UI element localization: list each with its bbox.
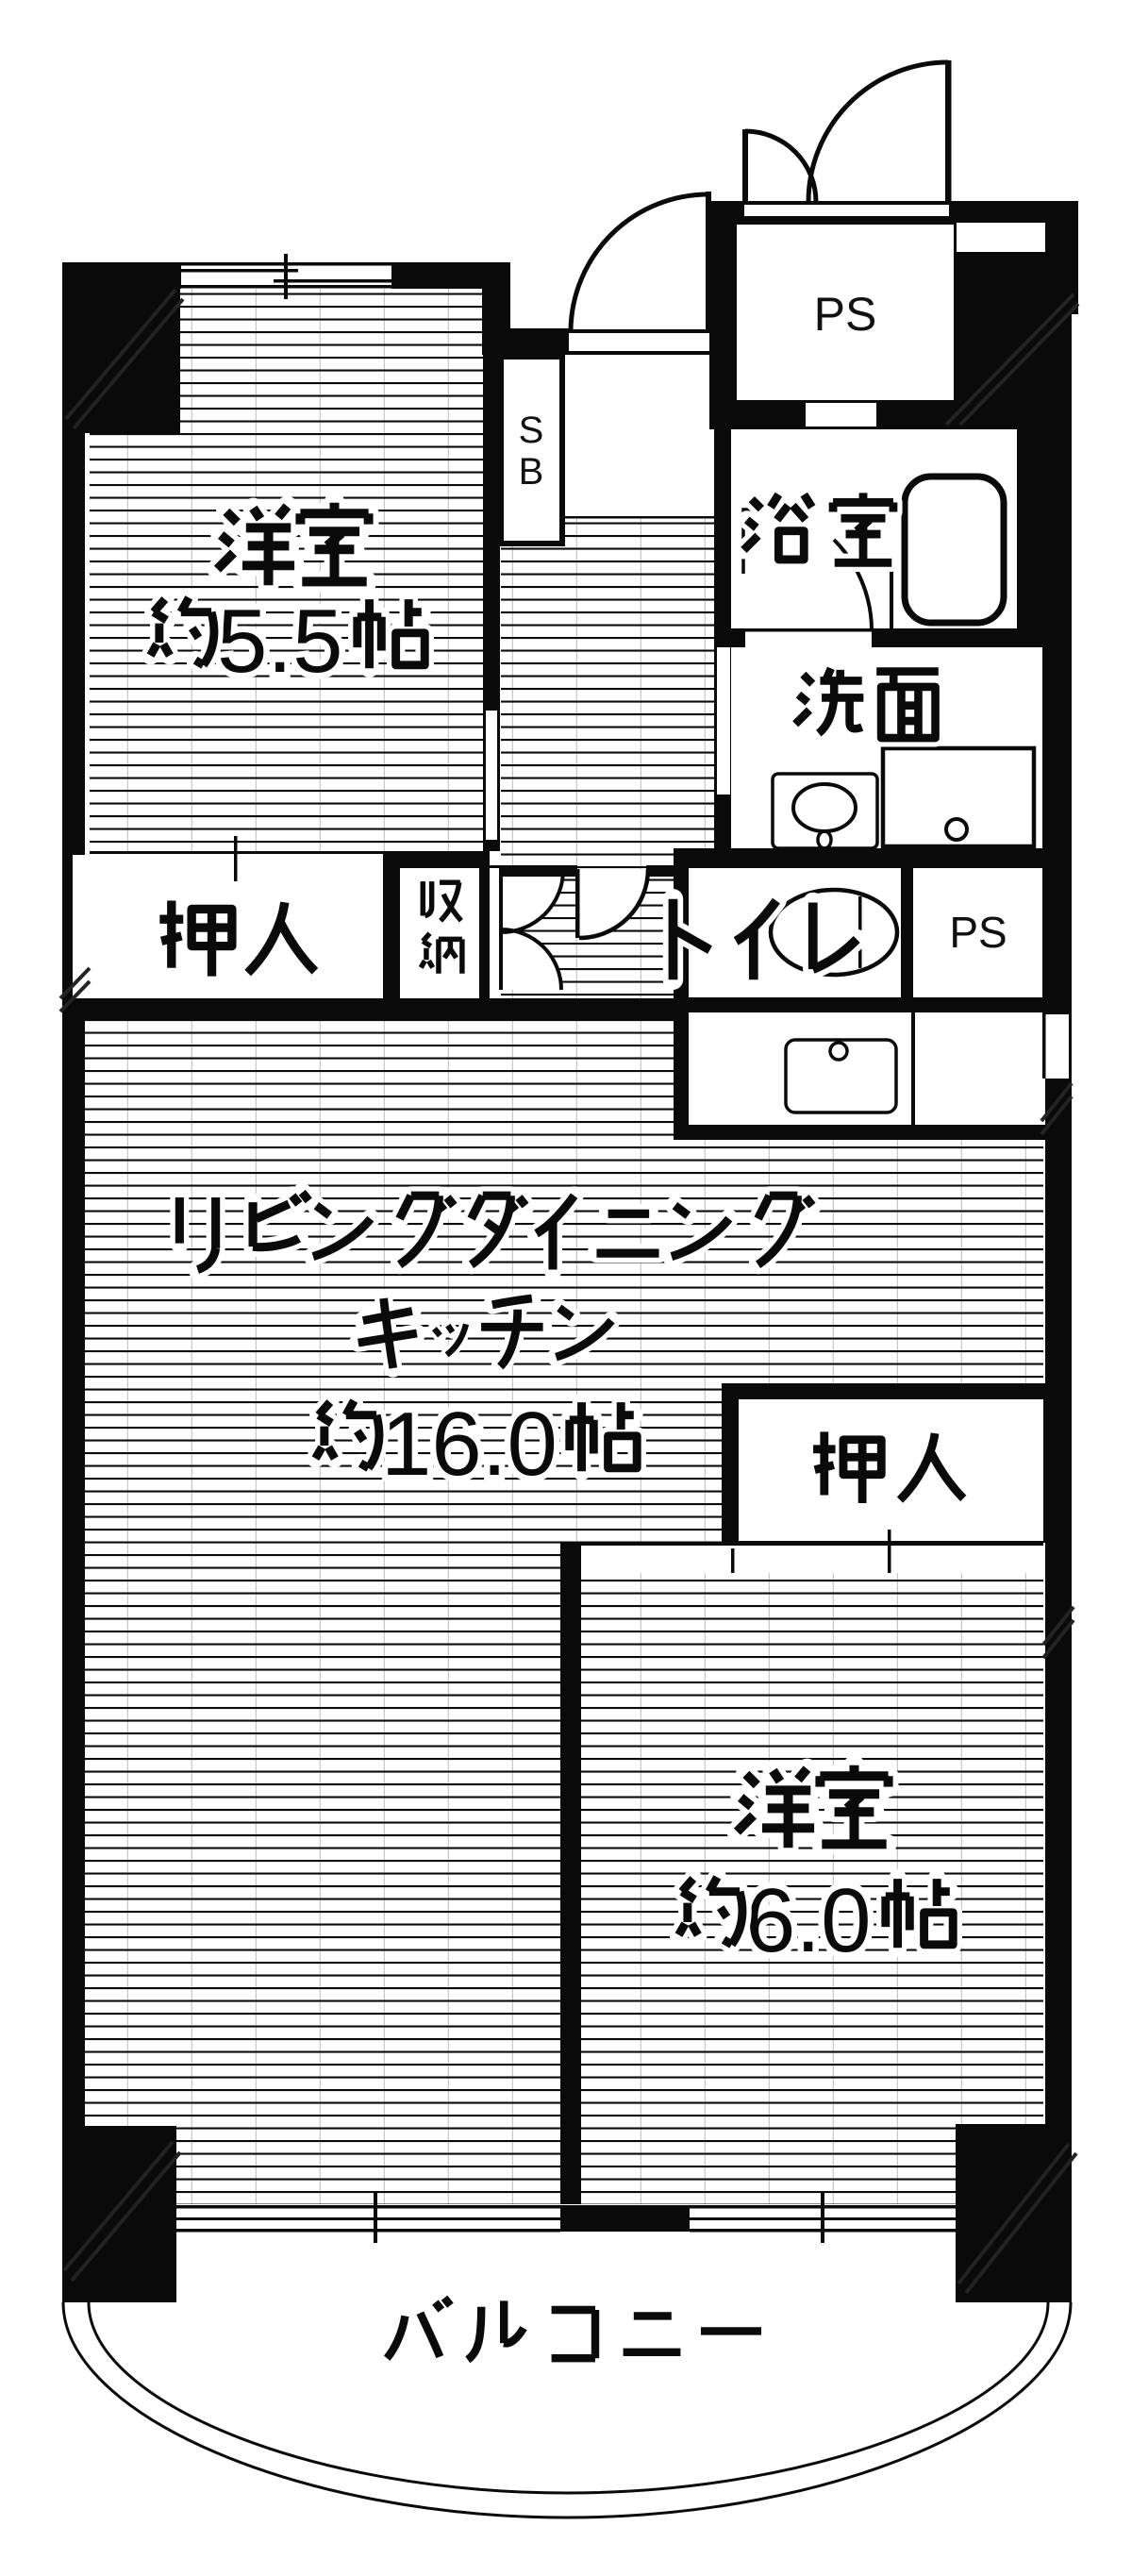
svg-text:S: S	[519, 410, 544, 451]
svg-text:5.5: 5.5	[217, 591, 342, 692]
svg-text:B: B	[519, 451, 544, 493]
svg-text:6.0: 6.0	[745, 1870, 871, 1971]
svg-text:PS: PS	[949, 908, 1007, 957]
svg-text:16.0: 16.0	[381, 1394, 558, 1495]
svg-text:PS: PS	[814, 288, 877, 341]
